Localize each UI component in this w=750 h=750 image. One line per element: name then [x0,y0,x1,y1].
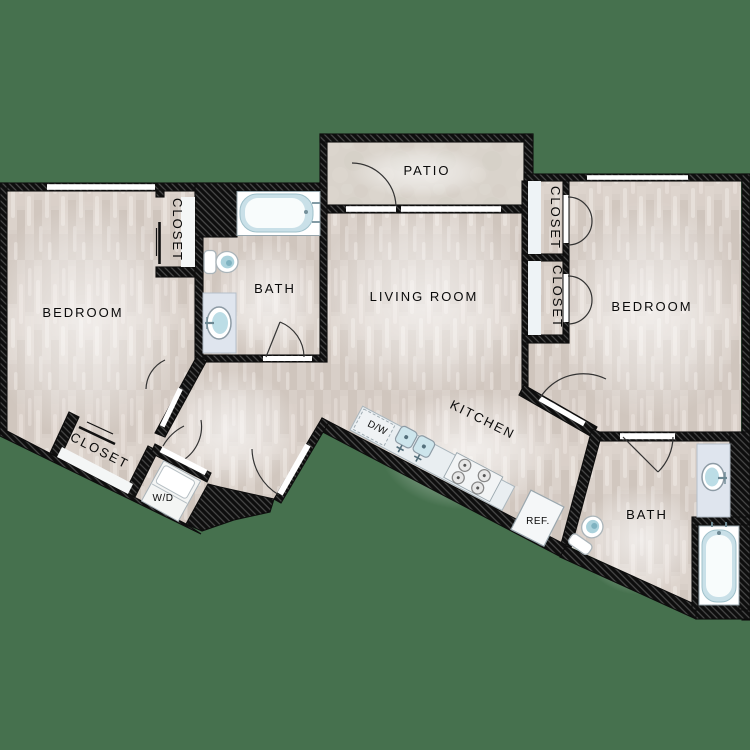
svg-text:PATIO: PATIO [403,163,450,178]
svg-text:BATH: BATH [626,507,668,522]
svg-text:BEDROOM: BEDROOM [42,305,123,320]
svg-text:CLOSET: CLOSET [170,198,185,262]
svg-text:CLOSET: CLOSET [548,186,563,250]
svg-text:BATH: BATH [254,281,296,296]
svg-text:CLOSET: CLOSET [550,265,565,329]
svg-text:REF.: REF. [526,516,550,527]
svg-text:BEDROOM: BEDROOM [611,299,692,314]
svg-text:LIVING ROOM: LIVING ROOM [370,289,479,304]
svg-text:W/D: W/D [153,493,174,504]
